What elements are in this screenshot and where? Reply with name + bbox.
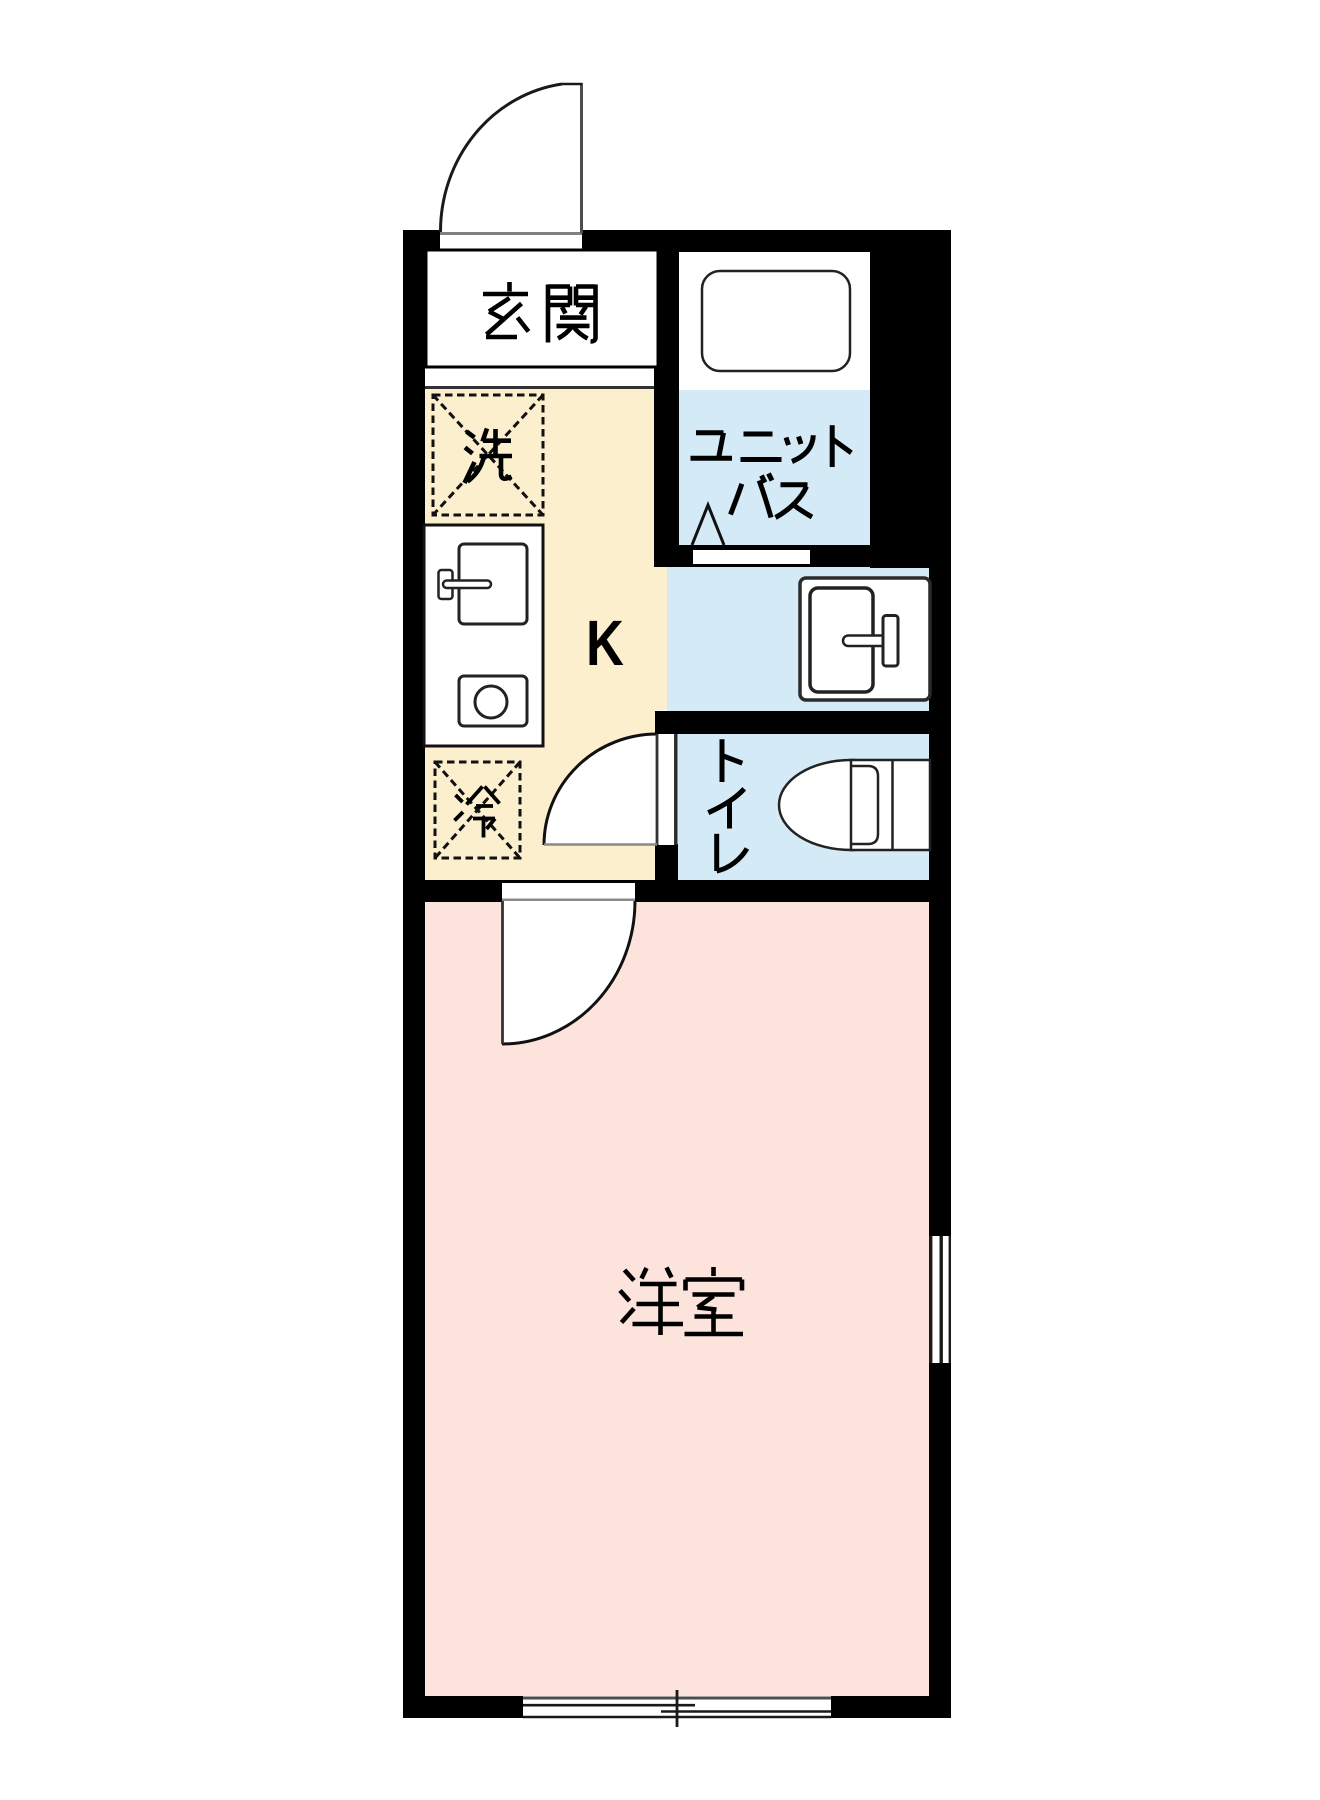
- svg-text:K: K: [586, 608, 624, 679]
